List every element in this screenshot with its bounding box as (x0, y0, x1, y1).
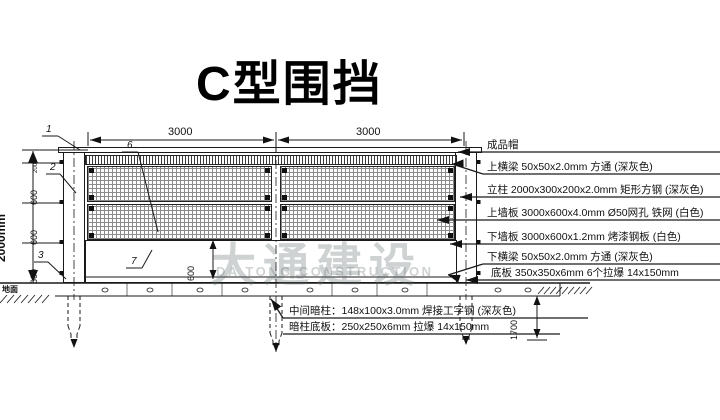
label-column: 立柱 2000x300x200x2.0mm 矩形方钢 (深灰色) (487, 184, 703, 196)
label-base-plate: 底板 350x350x6mm 6个拉爆 14x150mm (491, 267, 679, 279)
callout-6: 6 (127, 140, 133, 151)
watermark-en: DA TONG CONSTRUCTION (216, 264, 434, 279)
dim-total-height: 2000mm (0, 214, 8, 262)
callout-3: 3 (38, 250, 44, 261)
label-bottom-beam: 下横梁 50x50x2.0mm 方通 (深灰色) (487, 251, 653, 263)
ground-label: 地面 (2, 284, 18, 295)
callout-7: 7 (131, 256, 137, 267)
dim-bay-1: 3000 (168, 126, 192, 138)
dim-bay-2: 3000 (356, 126, 380, 138)
dim-depth-1700: 1700 (508, 320, 520, 340)
callout-2: 2 (50, 162, 56, 173)
label-finished-cap: 成品帽 (487, 139, 519, 151)
dim-seg-600-3: 600 (28, 269, 40, 284)
callout-1: 1 (46, 124, 52, 135)
dim-seg-600-2: 600 (28, 230, 40, 245)
dim-seg-600-1: 600 (28, 190, 40, 205)
dim-seg-200: 200 (30, 163, 42, 173)
watermark-cn: 大通建设 (210, 229, 422, 295)
label-lower-wall-panel: 下墙板 3000x600x1.2mm 烤漆钢板 (白色) (487, 231, 681, 243)
label-upper-wall-panel: 上墙板 3000x600x4.0mm Ø50网孔 铁网 (白色) (487, 207, 703, 219)
label-middle-hidden-column: 中间暗柱：148x100x3.0mm 焊接工字钢 (深灰色) (289, 305, 516, 317)
label-top-beam: 上横梁 50x50x2.0mm 方通 (深灰色) (487, 161, 653, 173)
technical-drawing: C型围挡 大通建设 DA TONG CONSTRUCTION (0, 0, 720, 420)
label-hidden-column-base: 暗柱底板：250x250x6mm 拉爆 14x150mm (289, 321, 489, 333)
dim-panel-600: 600 (185, 266, 197, 281)
